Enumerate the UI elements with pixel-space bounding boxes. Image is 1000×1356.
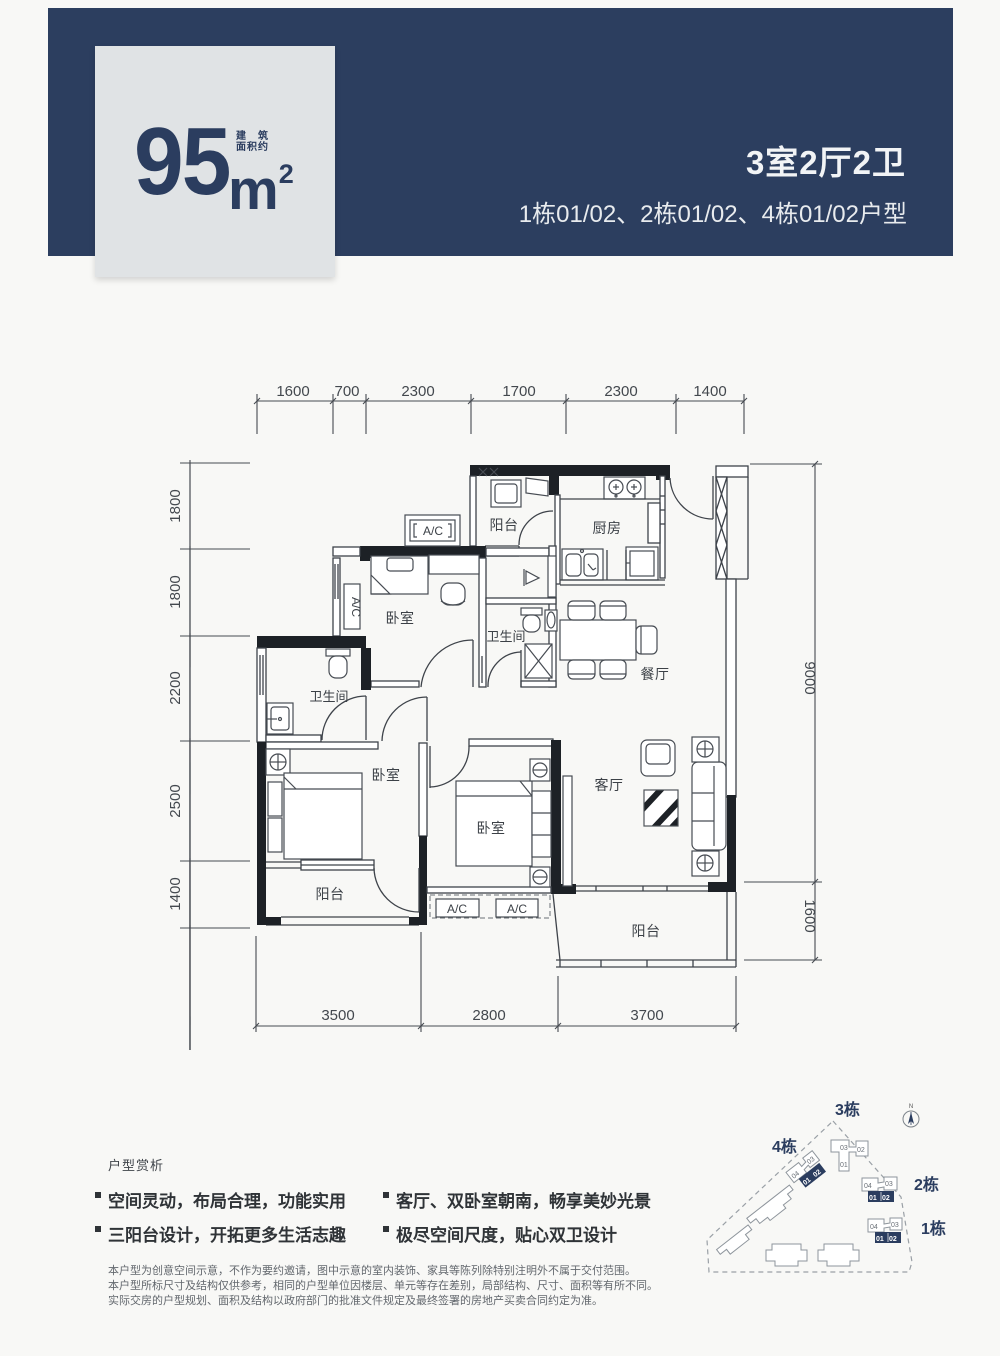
svg-text:阳台: 阳台 [316,886,345,902]
svg-text:A/C: A/C [349,597,363,617]
svg-text:1600: 1600 [276,383,309,400]
svg-text:2200: 2200 [167,671,184,704]
svg-text:01: 01 [869,1195,877,1202]
svg-text:04: 04 [870,1224,878,1231]
svg-text:2300: 2300 [401,383,434,400]
svg-text:卫生间: 卫生间 [309,689,348,704]
svg-text:03: 03 [891,1222,899,1229]
svg-text:卧室: 卧室 [477,820,506,836]
svg-text:客厅: 客厅 [595,777,624,793]
svg-text:700: 700 [334,383,359,400]
svg-text:3700: 3700 [630,1007,663,1024]
svg-text:1700: 1700 [502,383,535,400]
svg-text:N: N [909,1104,913,1110]
svg-text:1400: 1400 [693,383,726,400]
svg-text:03: 03 [885,1181,893,1188]
svg-text:A/C: A/C [447,902,467,916]
svg-text:9000: 9000 [801,661,818,694]
svg-text:2800: 2800 [472,1007,505,1024]
svg-text:1800: 1800 [167,489,184,522]
svg-text:2300: 2300 [604,383,637,400]
svg-text:04: 04 [864,1183,872,1190]
svg-text:01: 01 [840,1162,848,1169]
svg-text:卫生间: 卫生间 [486,629,525,644]
svg-text:3栋: 3栋 [835,1100,860,1119]
svg-text:1栋: 1栋 [921,1219,946,1238]
svg-text:02: 02 [882,1195,890,1202]
svg-text:A/C: A/C [423,524,443,538]
svg-text:1600: 1600 [801,899,818,932]
svg-text:1800: 1800 [167,575,184,608]
svg-text:02: 02 [857,1147,865,1154]
svg-text:03: 03 [840,1145,848,1152]
svg-text:卧室: 卧室 [386,610,415,626]
svg-text:阳台: 阳台 [632,923,661,939]
svg-text:餐厅: 餐厅 [641,666,670,682]
svg-text:01: 01 [876,1236,884,1243]
svg-text:02: 02 [889,1236,897,1243]
svg-text:1400: 1400 [167,877,184,910]
svg-text:厨房: 厨房 [593,520,622,536]
svg-text:4栋: 4栋 [772,1137,797,1156]
svg-text:3500: 3500 [321,1007,354,1024]
svg-text:卧室: 卧室 [372,767,401,783]
svg-text:A/C: A/C [507,902,527,916]
svg-text:2栋: 2栋 [914,1175,939,1194]
svg-text:2500: 2500 [167,784,184,817]
svg-text:阳台: 阳台 [490,517,519,533]
